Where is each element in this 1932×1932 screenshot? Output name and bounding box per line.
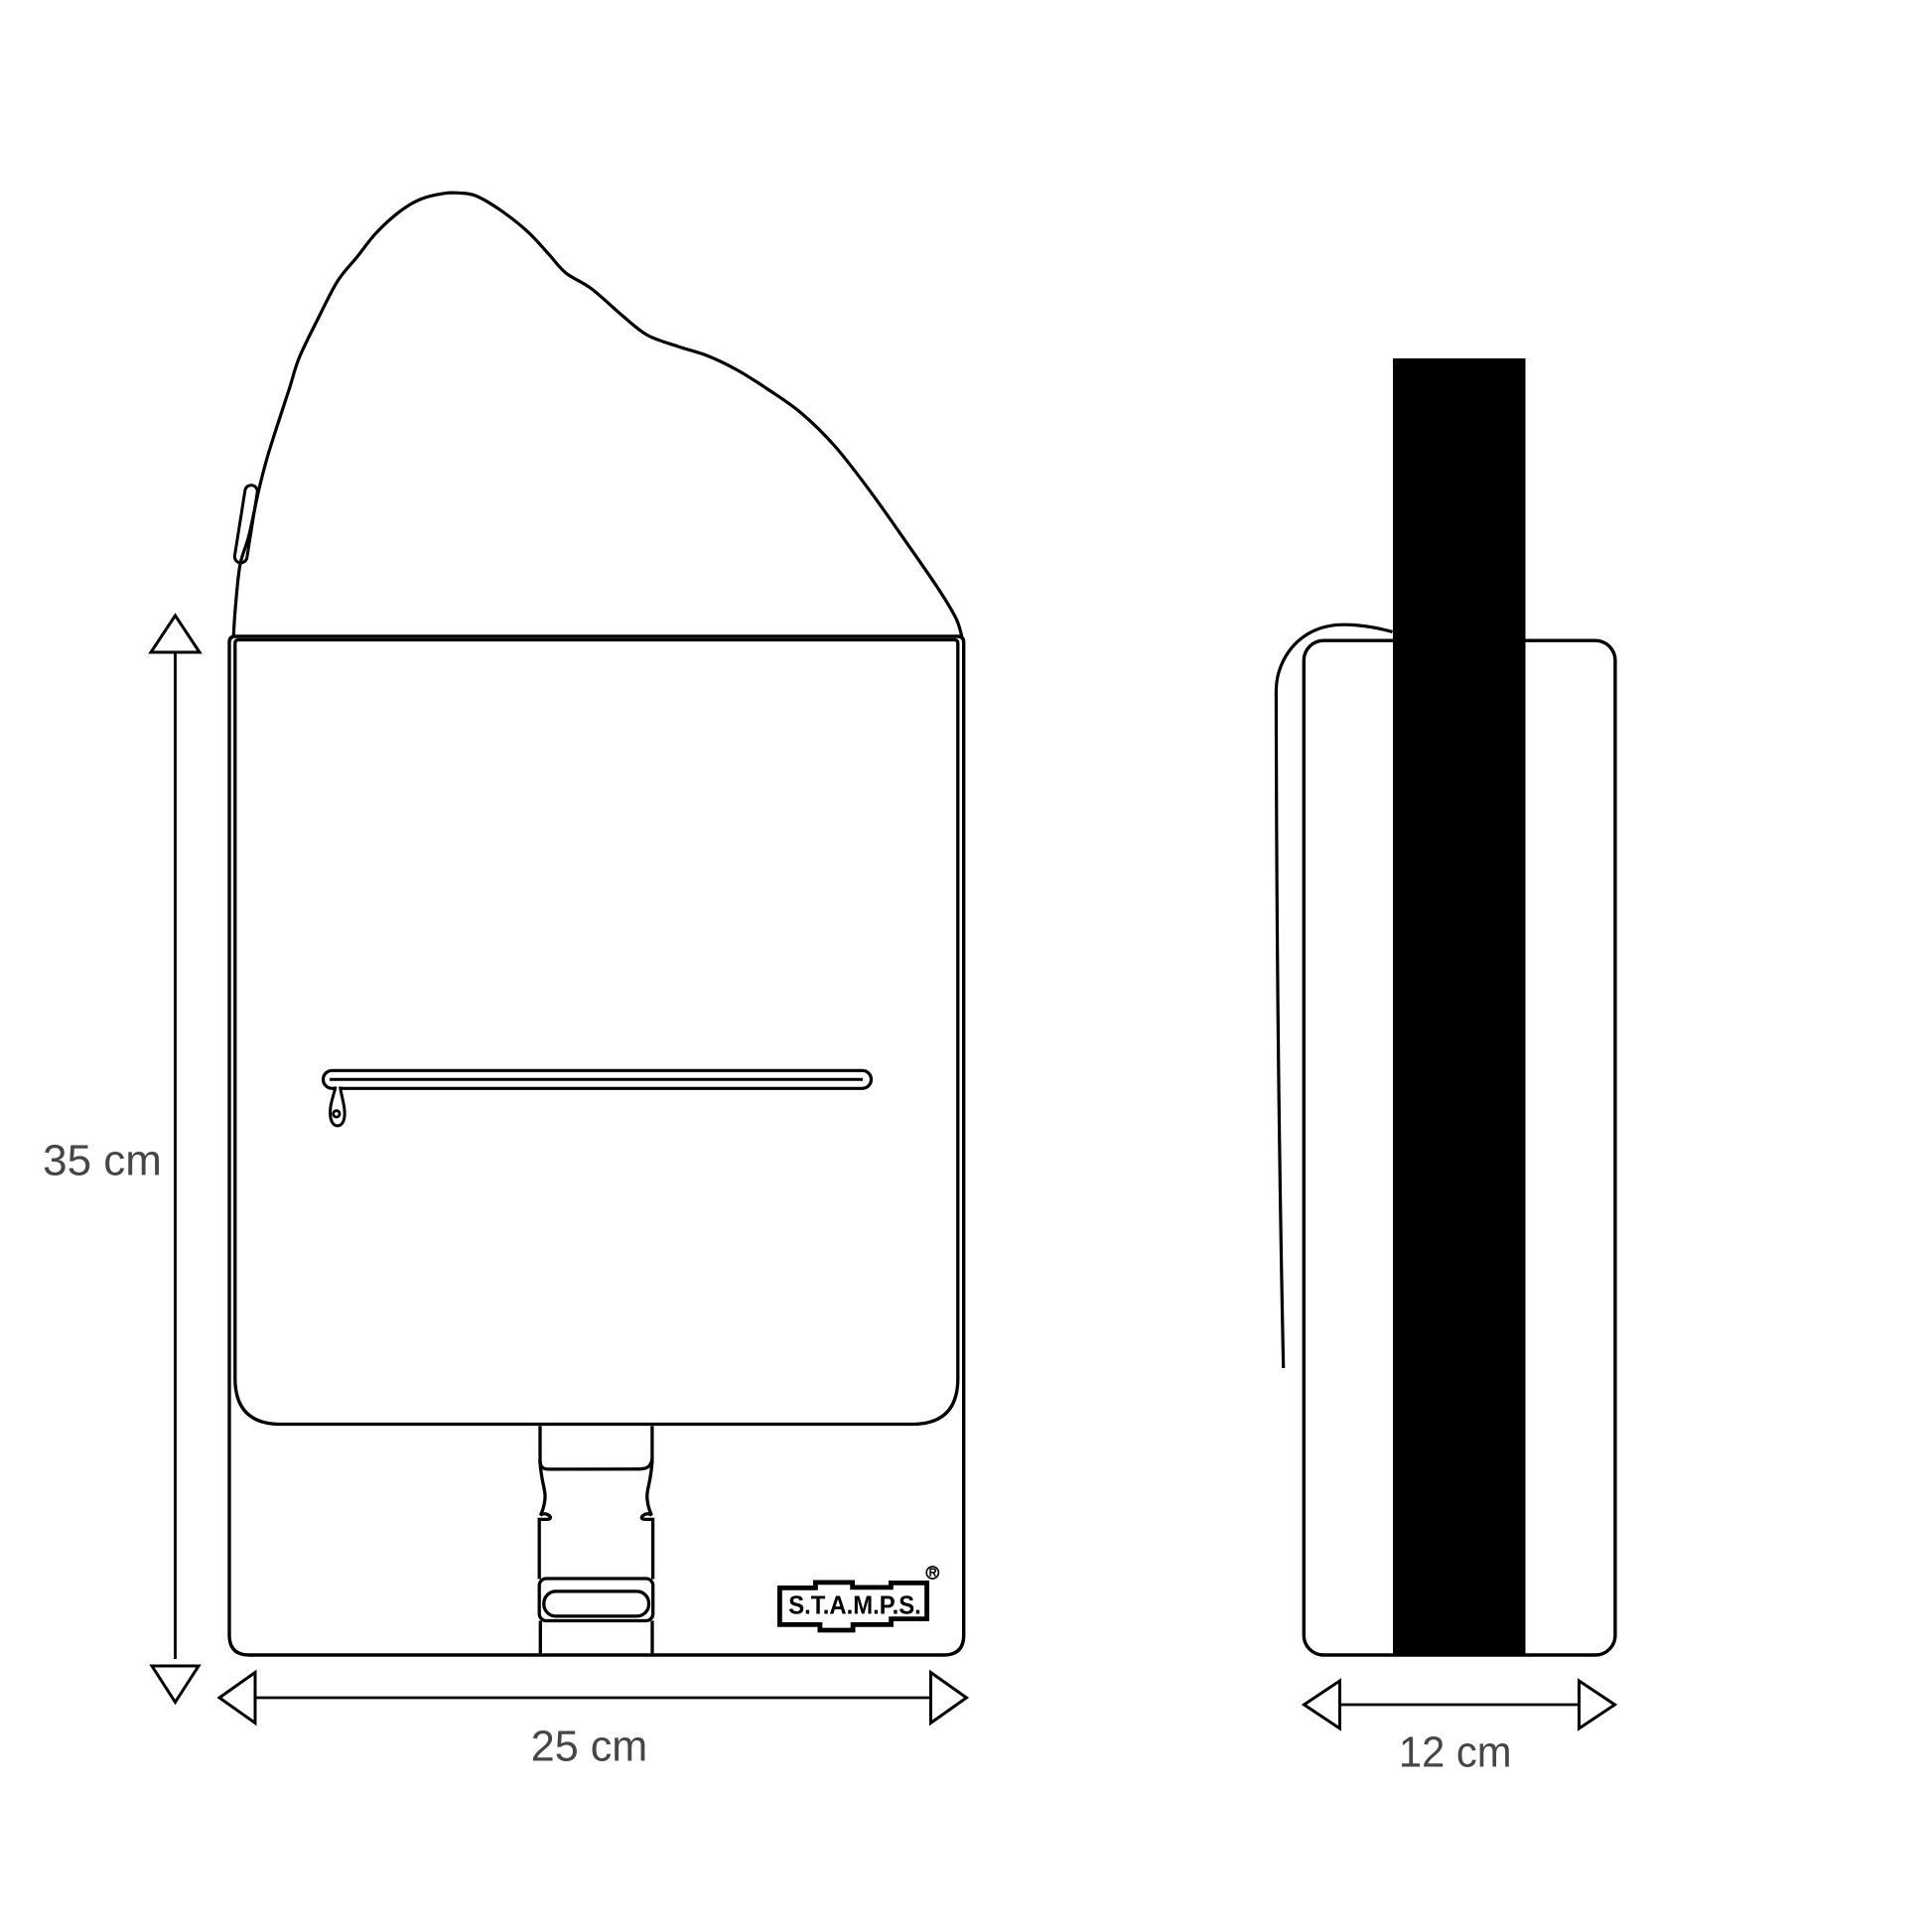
svg-text:25 cm: 25 cm — [531, 1722, 647, 1770]
svg-text:12 cm: 12 cm — [1399, 1728, 1512, 1777]
svg-text:35 cm: 35 cm — [43, 1137, 162, 1185]
svg-text:S.T.A.M.P.S.: S.T.A.M.P.S. — [788, 1590, 921, 1620]
